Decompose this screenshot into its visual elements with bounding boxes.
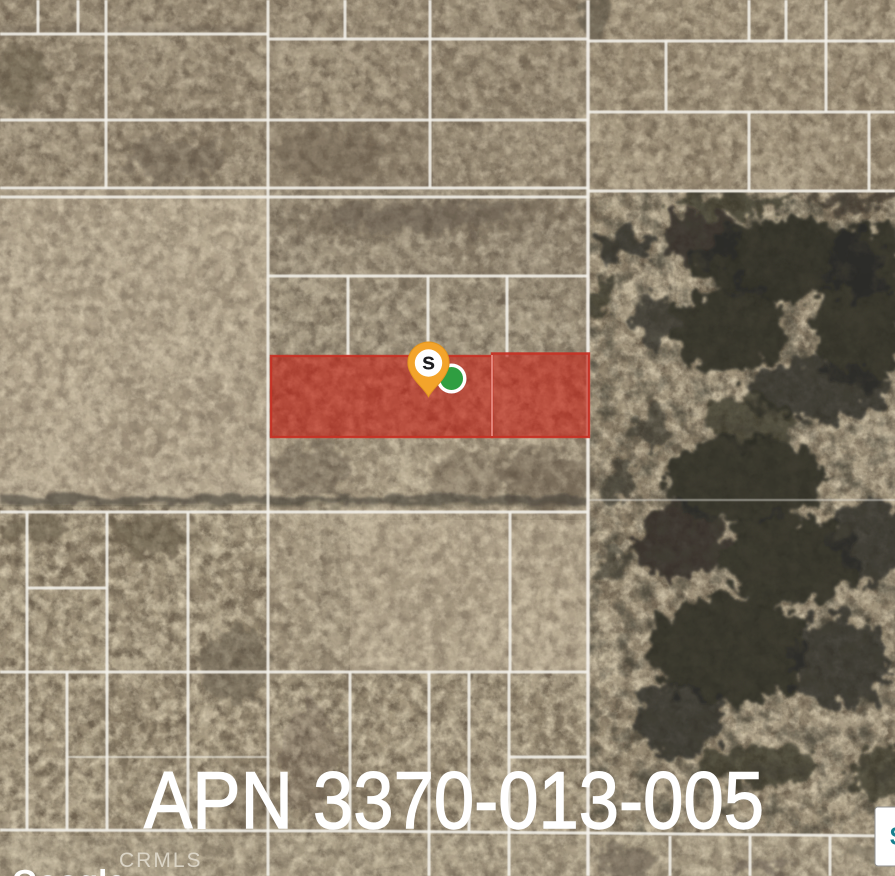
svg-text:Google: Google xyxy=(12,863,126,876)
svg-text:CRMLS: CRMLS xyxy=(119,849,203,872)
svg-text:s: s xyxy=(422,349,435,376)
svg-text:APN 3370-013-005: APN 3370-013-005 xyxy=(144,756,764,846)
svg-text:$: $ xyxy=(890,821,895,851)
